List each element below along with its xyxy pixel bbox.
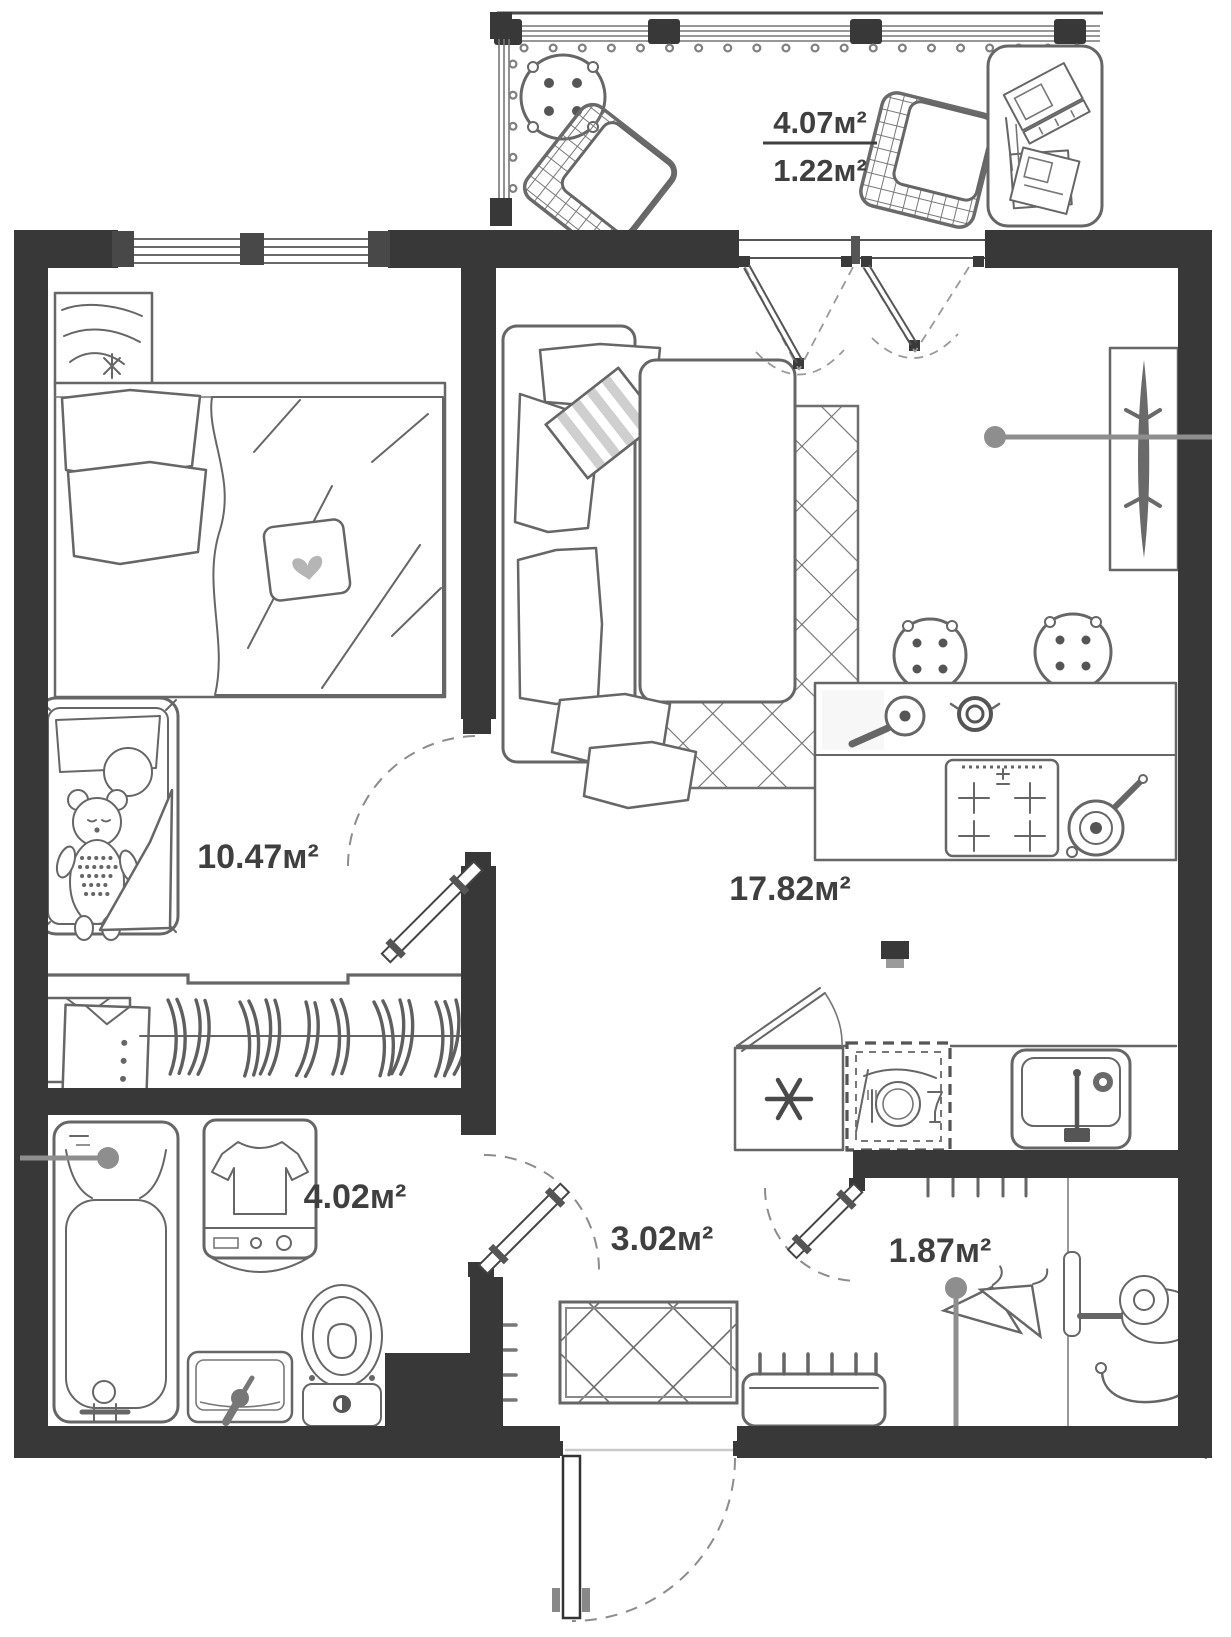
heart-pillow-icon bbox=[263, 518, 351, 601]
bedroom-area-label: 10.47м² bbox=[197, 838, 319, 876]
shoe-bench-icon bbox=[743, 1354, 885, 1426]
balcony-area-label: 4.07м² 1.22м² bbox=[763, 105, 877, 188]
wardrobe-hangers-icon bbox=[165, 999, 471, 1077]
leader-closet bbox=[945, 1277, 967, 1426]
dresser-icon bbox=[55, 293, 152, 385]
bar-stool-icon bbox=[894, 619, 966, 691]
column bbox=[881, 941, 909, 959]
shirts-icon bbox=[46, 998, 150, 1096]
bedroom: 10.47м² bbox=[38, 293, 471, 1096]
floor-plan-svg: 4.07м² 1.22м² bbox=[0, 0, 1231, 1637]
floor-plan: 4.07м² 1.22м² bbox=[0, 0, 1231, 1637]
bathroom-door bbox=[476, 1155, 599, 1277]
kitchen-island-icon bbox=[815, 683, 1176, 860]
hallway: 3.02м² bbox=[504, 1220, 885, 1426]
fridge-icon bbox=[735, 988, 843, 1150]
kitchen-bottom-row bbox=[735, 941, 1176, 1150]
stove-icon bbox=[946, 760, 1058, 856]
column-base bbox=[886, 959, 904, 968]
closet: 1.87м² bbox=[889, 1178, 1206, 1458]
double-bed-icon bbox=[55, 383, 445, 697]
dishwasher-icon bbox=[847, 1043, 950, 1150]
crib-icon bbox=[38, 698, 178, 940]
living-kitchen-area-label: 17.82м² bbox=[729, 870, 851, 908]
wicker-chair-icon bbox=[858, 90, 999, 231]
hallway-area-label: 3.02м² bbox=[611, 1220, 714, 1258]
living-kitchen: 17.82м² bbox=[503, 326, 1178, 1150]
entrance-door-icon bbox=[552, 1450, 735, 1621]
washing-machine-icon bbox=[204, 1120, 316, 1272]
toilet-icon bbox=[302, 1285, 382, 1426]
bar-stool-icon bbox=[1035, 614, 1111, 690]
closet-area-label: 1.87м² bbox=[889, 1232, 992, 1270]
leader-pin-icon bbox=[984, 426, 1006, 448]
closet-door bbox=[765, 1180, 866, 1281]
desk-icon bbox=[988, 46, 1102, 226]
closet-rail-hooks bbox=[928, 1178, 1026, 1196]
wall-hooks bbox=[504, 1325, 516, 1400]
basin-icon bbox=[188, 1352, 292, 1422]
leader-pin-icon bbox=[945, 1277, 967, 1299]
kitchen-sink-icon bbox=[1012, 1050, 1130, 1148]
tv-icon bbox=[1110, 348, 1178, 570]
balcony-windows bbox=[739, 232, 985, 375]
balcony-area-total: 4.07м² bbox=[773, 105, 867, 140]
bedroom-window bbox=[112, 231, 390, 267]
leader-pin-icon bbox=[97, 1147, 119, 1169]
balcony-area-counted: 1.22м² bbox=[773, 153, 867, 188]
bathtub-icon bbox=[54, 1122, 178, 1422]
balcony: 4.07м² 1.22м² bbox=[490, 12, 1103, 261]
doormat-icon bbox=[560, 1302, 737, 1403]
wardrobe bbox=[46, 975, 471, 1096]
bathroom-area-label: 4.02м² bbox=[304, 1178, 407, 1216]
